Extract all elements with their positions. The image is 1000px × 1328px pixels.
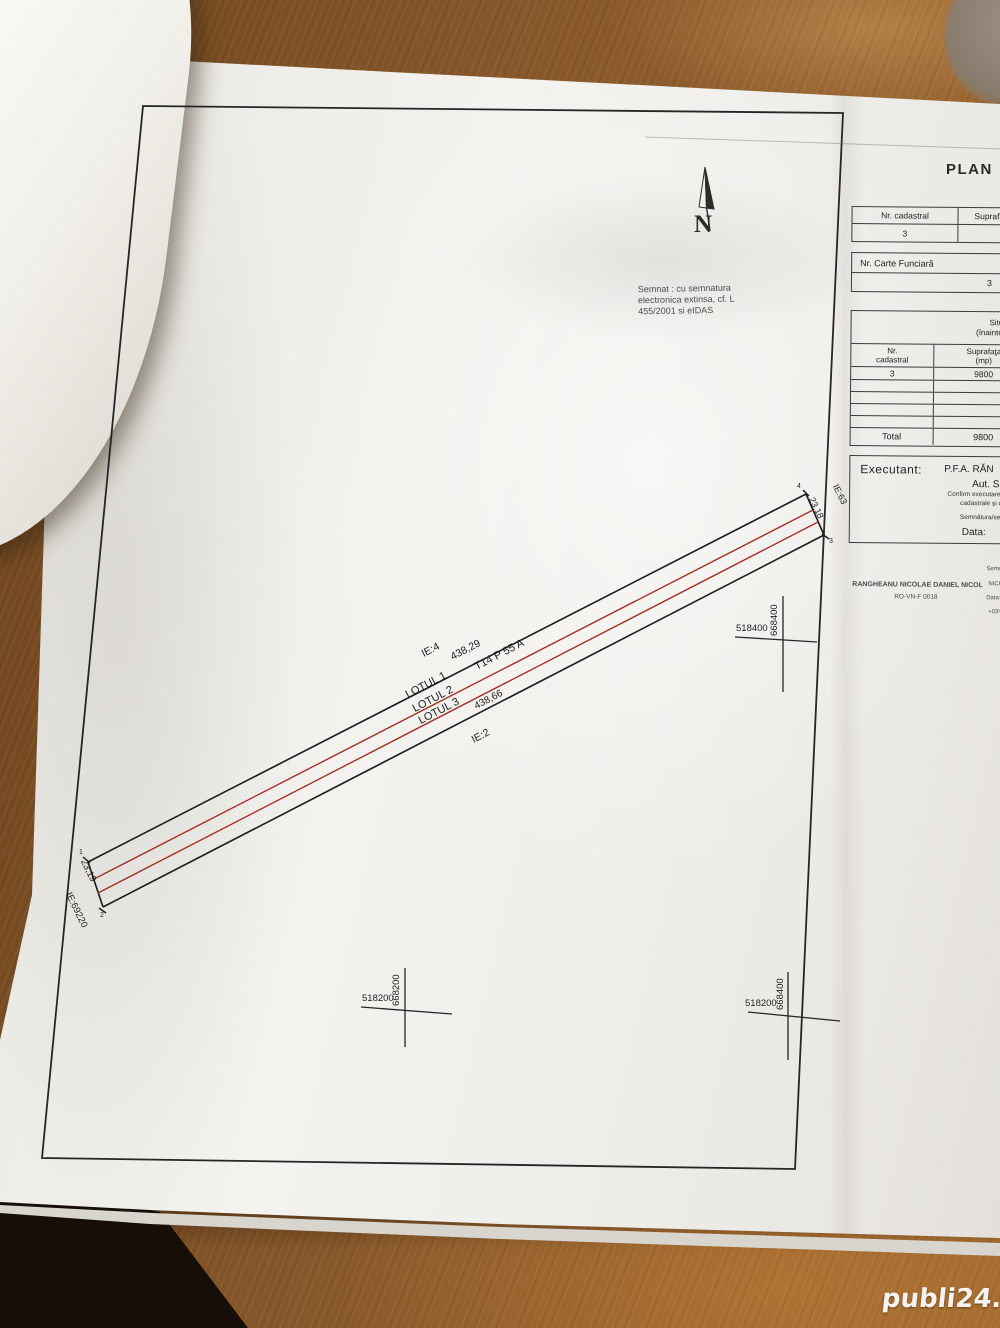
- t2-header: Nr. Carte Funciară: [852, 253, 1000, 274]
- t1-col2-header: Suprafaț: [958, 208, 1000, 225]
- t2-value: 3: [852, 273, 1000, 292]
- photo-of-cadastral-plan: PLAN N Semnat : cu semnatura electronica…: [0, 0, 1000, 1328]
- t3-col2b: (mp): [976, 356, 993, 365]
- t1-col1-header: Nr. cadastral: [852, 207, 958, 224]
- executant-box: Executant: P.F.A. RĂN Aut. S Confirm exe…: [849, 455, 1000, 546]
- t3-row-mp: 9800: [934, 368, 1000, 381]
- t3-col1b: cadastral: [876, 355, 909, 364]
- executant-name: P.F.A. RĂN: [944, 465, 993, 475]
- t3-empty: [851, 380, 934, 392]
- t3-empty: [851, 404, 934, 416]
- executant-label: Executant:: [860, 463, 922, 476]
- t3-total-mp: 9800: [934, 429, 1000, 446]
- t1-col1-value: 3: [852, 224, 958, 242]
- situatia-table: Situaţi (înainte de de Nr. cadastral Sup…: [850, 310, 1000, 449]
- sig-right1: Semnat: [986, 566, 1000, 572]
- executant-confirm2: cadastrale şi corespondenţ: [850, 499, 1000, 509]
- sig-right3: Data: 2: [986, 595, 1000, 601]
- signer-cert: RO-VN-F 0018: [894, 593, 937, 600]
- t3-col2-header: Suprafaţa (mp): [934, 345, 1000, 368]
- land-book-table: Nr. Carte Funciară 3: [851, 252, 1000, 293]
- t3-caption2: (înainte de de: [851, 327, 1000, 340]
- cadastral-number-table: Nr. cadastral Suprafaț 3: [851, 206, 1000, 243]
- digital-signature-block: RANGHEANU NICOLAE DANIEL NICOL RO-VN-F 0…: [848, 565, 1000, 626]
- t1-col2-value: [958, 225, 1000, 243]
- executant-data-label: Data:: [962, 528, 986, 538]
- t3-col1-header: Nr. cadastral: [851, 344, 934, 367]
- signer-name: RANGHEANU NICOLAE DANIEL NICOL: [852, 581, 983, 589]
- sig-right2: NICOLA: [988, 581, 1000, 587]
- t3-total-label: Total: [851, 428, 934, 445]
- t3-col2a: Suprafaţa: [966, 347, 1000, 356]
- watermark: publi24.ro: [881, 1286, 1000, 1312]
- executant-aut: Aut. S: [972, 480, 999, 490]
- t3-row-nr: 3: [851, 367, 934, 380]
- t3-empty: [851, 392, 934, 404]
- t3-empty: [851, 416, 934, 428]
- executant-confirm1: Confirm executarea măsurătorilor la: [850, 490, 1000, 500]
- title-block: Nr. cadastral Suprafaț 3 Nr. Carte Funci…: [0, 0, 1000, 1328]
- executant-confirm3: Semnătura/semnătură digit: [850, 513, 1000, 523]
- sig-right4: +03'0: [988, 609, 1000, 615]
- t3-col1a: Nr.: [887, 346, 897, 355]
